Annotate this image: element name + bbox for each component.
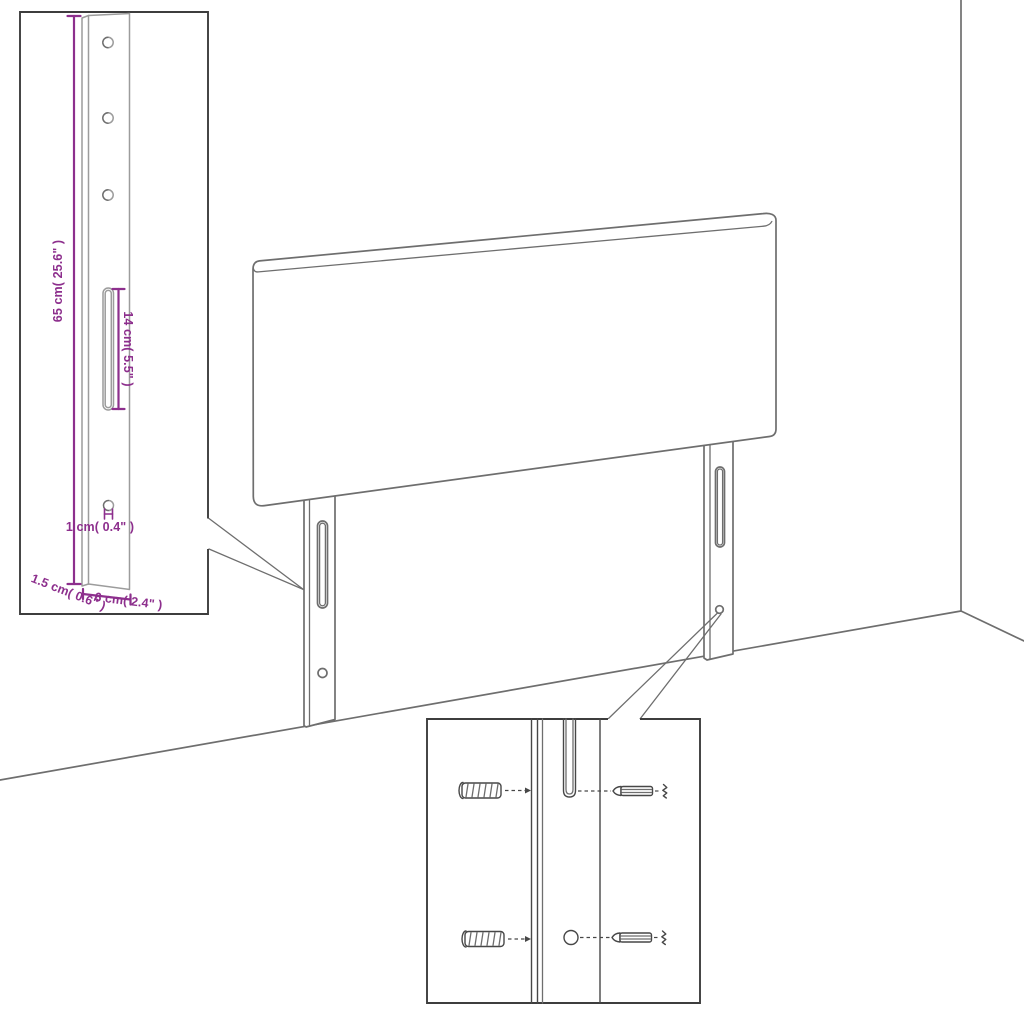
callout-line bbox=[608, 614, 717, 720]
headboard-panel bbox=[253, 213, 776, 505]
dimension-label-height: 65 cm( 25.6" ) bbox=[51, 240, 65, 322]
floor-line-right bbox=[961, 611, 1024, 641]
diagram-page: 65 cm( 25.6" ) 14 cm( 5.5" ) 1 cm( 0.4" … bbox=[0, 0, 1024, 1024]
left-leg bbox=[304, 470, 335, 727]
screw-body bbox=[621, 787, 653, 796]
detail-inset-mounting bbox=[427, 719, 700, 1003]
right-leg bbox=[704, 428, 733, 660]
assembly-diagram: 65 cm( 25.6" ) 14 cm( 5.5" ) 1 cm( 0.4" … bbox=[0, 0, 1024, 1024]
inset-bracket bbox=[82, 14, 130, 590]
wall-plug-icon bbox=[462, 931, 504, 947]
callout-line bbox=[209, 519, 304, 590]
dimension-label-hole: 1 cm( 0.4" ) bbox=[66, 520, 134, 534]
detail-inset-leg: 65 cm( 25.6" ) 14 cm( 5.5" ) 1 cm( 0.4" … bbox=[20, 12, 208, 614]
wall-plug-icon bbox=[459, 783, 501, 799]
callout-lines-left bbox=[209, 519, 304, 590]
dimension-label-slot: 14 cm( 5.5" ) bbox=[121, 311, 135, 386]
screw-body bbox=[620, 933, 652, 942]
callout-line bbox=[640, 614, 721, 719]
callout-line bbox=[209, 549, 304, 590]
headboard-front bbox=[253, 213, 776, 505]
